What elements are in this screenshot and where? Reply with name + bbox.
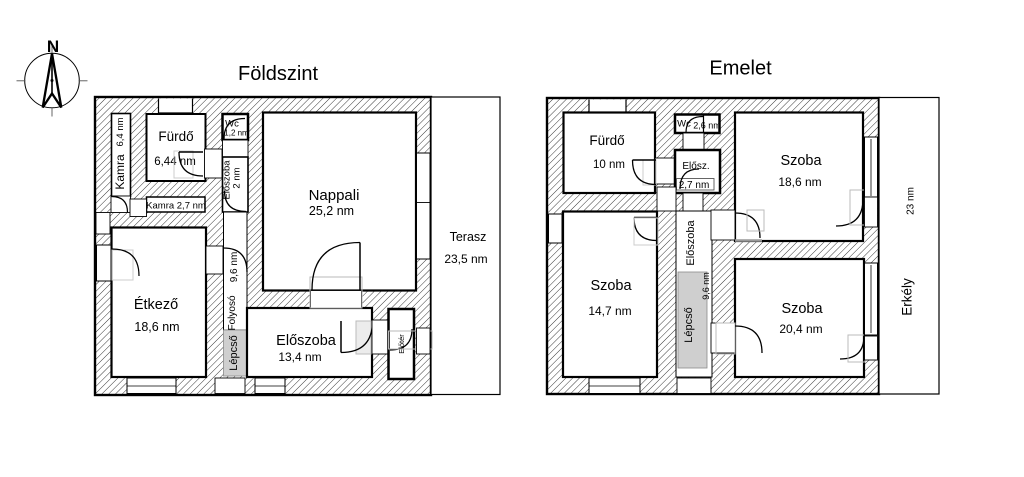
svg-text:18,6 nm: 18,6 nm	[778, 175, 821, 189]
svg-text:Terasz: Terasz	[450, 230, 487, 244]
svg-text:Kamra: Kamra	[113, 154, 127, 190]
svg-text:Előszoba: Előszoba	[685, 219, 697, 265]
svg-text:20,4 nm: 20,4 nm	[779, 322, 822, 336]
svg-text:Nappali: Nappali	[309, 187, 360, 204]
svg-text:Wc: Wc	[677, 119, 691, 130]
svg-text:Szoba: Szoba	[590, 278, 632, 294]
svg-text:Lépcső: Lépcső	[228, 335, 240, 370]
svg-text:2,7 nm: 2,7 nm	[679, 180, 710, 191]
svg-text:2 nm: 2 nm	[232, 167, 243, 188]
svg-text:14,7 nm: 14,7 nm	[588, 304, 631, 318]
svg-text:2,6 nm: 2,6 nm	[693, 121, 721, 131]
svg-text:18,6 nm: 18,6 nm	[134, 320, 179, 334]
svg-text:Előtér: Előtér	[397, 334, 406, 354]
svg-text:13,4 nm: 13,4 nm	[278, 350, 321, 364]
svg-text:Kamra 2,7 nm: Kamra 2,7 nm	[146, 201, 206, 212]
svg-text:Elősz.: Elősz.	[682, 161, 709, 172]
svg-text:Étkező: Étkező	[134, 296, 178, 313]
svg-text:Lépcső: Lépcső	[683, 307, 695, 342]
svg-text:23 nm: 23 nm	[906, 187, 917, 215]
svg-text:Előszoba: Előszoba	[276, 333, 337, 349]
svg-text:Folyosó: Folyosó	[227, 295, 238, 330]
svg-text:Fürdő: Fürdő	[158, 129, 193, 144]
svg-text:N: N	[47, 37, 59, 56]
svg-text:Erkély: Erkély	[900, 278, 915, 316]
svg-text:Fürdő: Fürdő	[589, 133, 624, 148]
svg-text:Emelet: Emelet	[709, 58, 772, 80]
svg-text:10 nm: 10 nm	[593, 159, 625, 171]
svg-text:6,4 nm: 6,4 nm	[115, 117, 126, 146]
svg-text:25,2 nm: 25,2 nm	[309, 204, 354, 218]
svg-text:9,6 nm: 9,6 nm	[229, 252, 240, 283]
svg-text:Szoba: Szoba	[781, 301, 823, 317]
svg-text:Szoba: Szoba	[780, 153, 822, 169]
svg-text:23,5 nm: 23,5 nm	[444, 252, 487, 266]
svg-text:Földszint: Földszint	[238, 63, 318, 85]
svg-text:6,44 nm: 6,44 nm	[154, 156, 196, 168]
svg-text:9,6 nm: 9,6 nm	[701, 272, 711, 300]
svg-text:1,2 nm: 1,2 nm	[224, 129, 249, 138]
